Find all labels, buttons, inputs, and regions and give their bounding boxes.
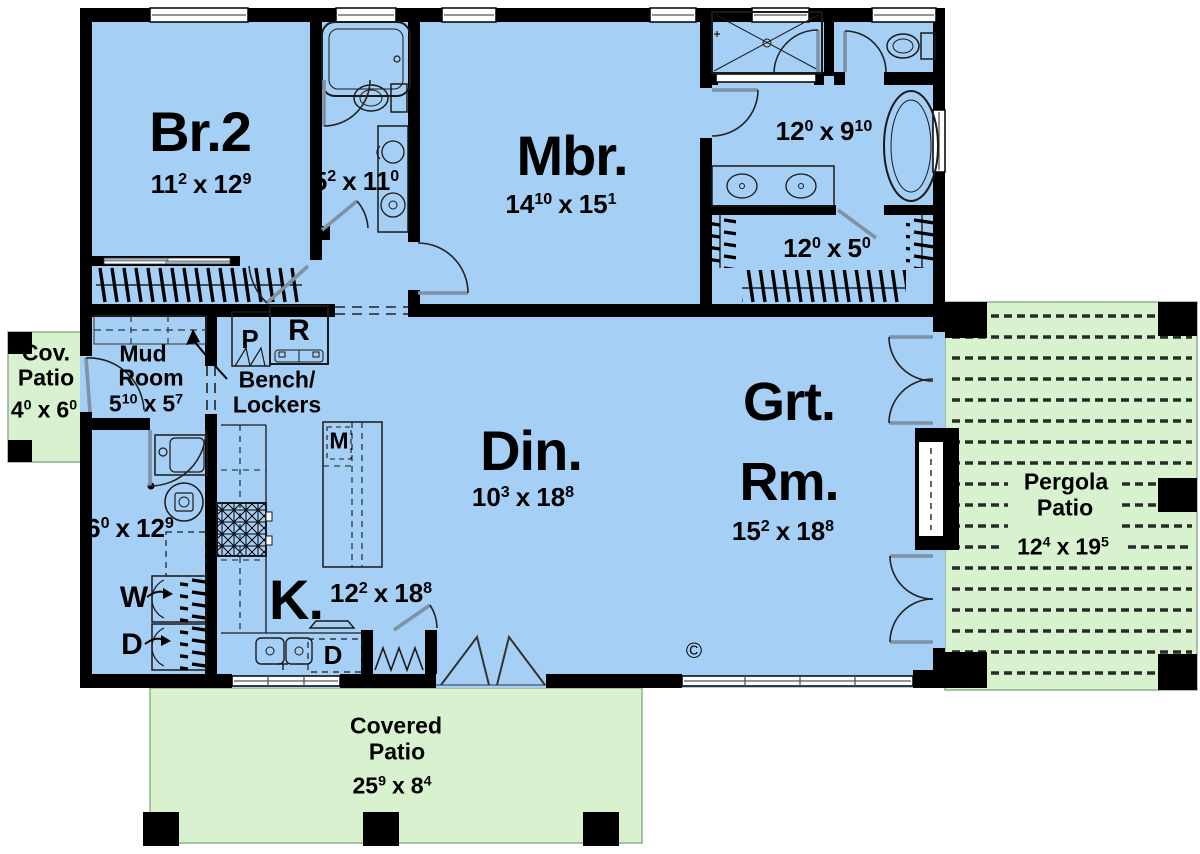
dim-dining: 103x188 bbox=[472, 484, 574, 510]
pergola-post bbox=[1158, 654, 1197, 690]
label-bench-lockers-1: Bench/ bbox=[239, 369, 316, 392]
label-island: M bbox=[329, 430, 348, 453]
room-label-master-bedroom: Mbr. bbox=[516, 128, 627, 184]
room-label-bedroom2: Br.2 bbox=[149, 104, 251, 160]
room-label-cov-patio-2: Patio bbox=[18, 367, 74, 390]
room-label-covered-patio-1: Covered bbox=[350, 715, 442, 738]
room-label-pergola-patio-2: Patio bbox=[1037, 497, 1093, 520]
floor-plan-page: Br.2 112x129 52x110 Mbr. 1410x151 120x91… bbox=[0, 0, 1200, 854]
dim-mud-room: 510x57 bbox=[109, 393, 183, 416]
room-label-pergola-patio-1: Pergola bbox=[1024, 471, 1108, 494]
room-label-dining: Din. bbox=[480, 423, 582, 479]
dim-kitchen: 122x188 bbox=[330, 580, 432, 606]
room-label-great-room-2: Rm. bbox=[739, 455, 838, 509]
patio-post bbox=[363, 812, 399, 846]
dim-pergola-patio: 124x195 bbox=[1017, 536, 1109, 559]
room-label-great-room-1: Grt. bbox=[743, 375, 835, 429]
pergola-post bbox=[1158, 302, 1197, 336]
pergola-post bbox=[945, 302, 987, 338]
dim-hall-bath: 52x110 bbox=[313, 168, 399, 194]
room-label-cov-patio-1: Cov. bbox=[22, 342, 70, 365]
room-label-kitchen: K. bbox=[269, 572, 323, 628]
dim-master-bedroom: 1410x151 bbox=[505, 191, 616, 217]
patio-post bbox=[143, 812, 179, 846]
label-washer: W bbox=[120, 583, 148, 613]
copyright-mark: © bbox=[686, 640, 702, 662]
dim-bedroom2: 112x129 bbox=[151, 171, 252, 197]
dim-covered-patio: 259x84 bbox=[352, 775, 431, 798]
room-label-mud-room-1: Mud bbox=[119, 343, 166, 366]
label-bench-lockers-2: Lockers bbox=[233, 394, 321, 417]
label-dishwasher: D bbox=[324, 642, 343, 668]
label-fridge: R bbox=[288, 316, 310, 346]
range bbox=[217, 503, 266, 556]
dim-master-bath: 120x910 bbox=[776, 118, 873, 144]
room-label-covered-patio-2: Patio bbox=[369, 741, 425, 764]
room-label-mud-room-2: Room bbox=[118, 367, 183, 390]
label-dryer: D bbox=[121, 630, 143, 660]
dim-cov-patio: 40x60 bbox=[11, 399, 77, 422]
dim-laundry: 60x129 bbox=[86, 515, 174, 541]
patio-post bbox=[583, 812, 619, 846]
fireplace bbox=[915, 428, 959, 550]
pergola-post bbox=[1158, 478, 1197, 512]
label-pantry: P bbox=[241, 326, 258, 352]
dim-great-room: 152x188 bbox=[732, 518, 834, 544]
pergola-post bbox=[945, 652, 987, 688]
dim-master-closet: 120x50 bbox=[783, 235, 871, 261]
